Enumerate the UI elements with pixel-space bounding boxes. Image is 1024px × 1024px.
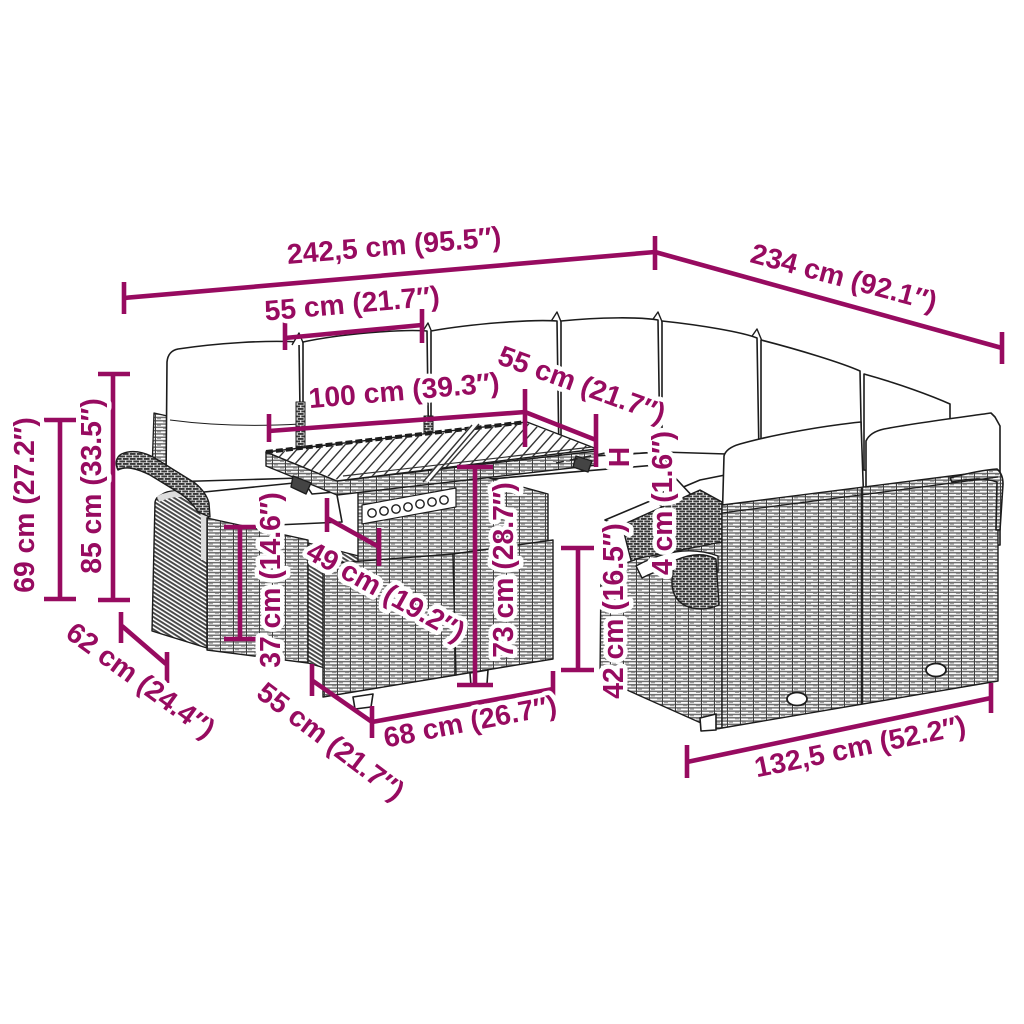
- svg-text:85 cm (33.5″): 85 cm (33.5″): [75, 398, 107, 574]
- svg-text:37 cm (14.6″): 37 cm (14.6″): [254, 492, 286, 668]
- svg-text:69 cm (27.2″): 69 cm (27.2″): [8, 417, 40, 593]
- svg-text:4 cm (1.6″): 4 cm (1.6″): [646, 431, 678, 575]
- svg-text:H: H: [603, 447, 635, 467]
- svg-text:42 cm (16.5″): 42 cm (16.5″): [597, 523, 629, 699]
- svg-text:73 cm (28.7″): 73 cm (28.7″): [487, 482, 519, 658]
